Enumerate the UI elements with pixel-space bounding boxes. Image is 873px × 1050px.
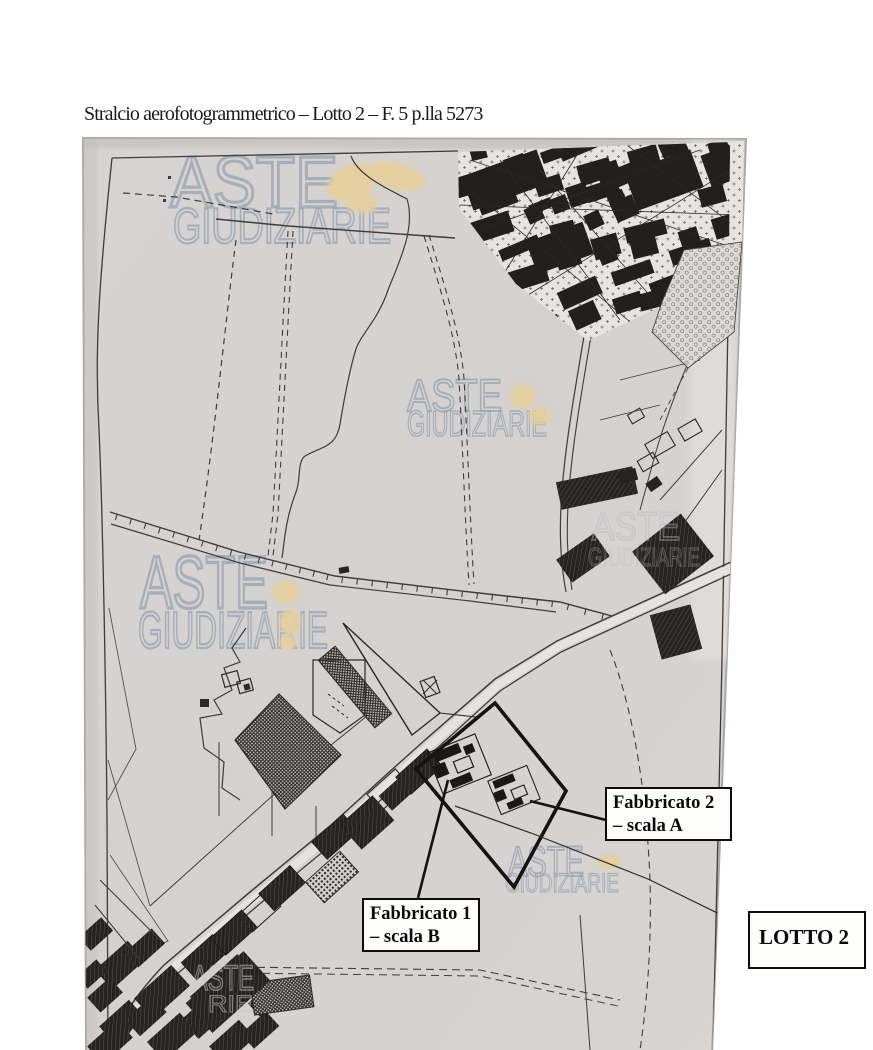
svg-text:GIUDIZIARIE: GIUDIZIARIE <box>407 403 547 444</box>
svg-text:RIE: RIE <box>208 991 253 1018</box>
svg-text:GIUDIZIARIE: GIUDIZIARIE <box>138 602 328 660</box>
svg-text:GIUDIZIARIE: GIUDIZIARIE <box>588 542 700 572</box>
